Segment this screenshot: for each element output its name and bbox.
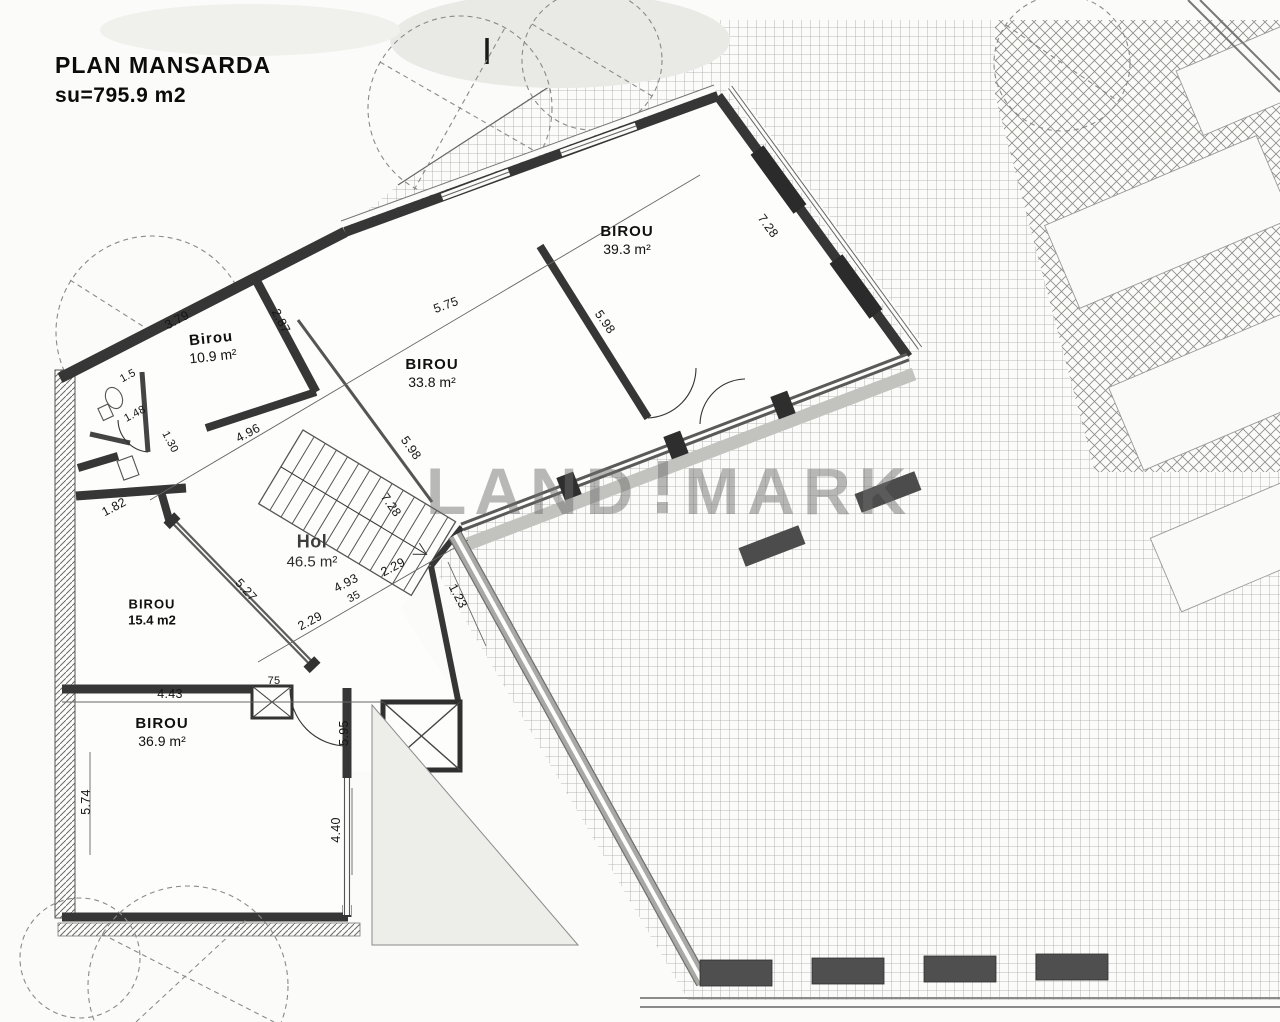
room-area: 33.8 m²: [405, 374, 458, 390]
room-label-hol: Hol 46.5 m²: [287, 532, 338, 571]
dimension-label: 4.43: [157, 687, 183, 701]
room-label-birou-10: Birou 10.9 m²: [187, 328, 238, 367]
room-label-birou-36: BIROU 36.9 m²: [135, 715, 188, 749]
bench: [1036, 954, 1108, 980]
bench: [700, 960, 772, 986]
plan-title-line2: su=795.9 m2: [55, 84, 271, 108]
room-name: Hol: [287, 532, 338, 553]
dimension-label: 5.95: [337, 720, 351, 746]
room-name: BIROU: [600, 223, 653, 240]
room-label-birou-33: BIROU 33.8 m²: [405, 356, 458, 390]
bench: [924, 956, 996, 982]
room-name: BIROU: [128, 597, 176, 612]
room-area: 36.9 m²: [135, 733, 188, 749]
dimension-label: 75: [268, 675, 281, 687]
room-name: BIROU: [405, 356, 458, 373]
dimension-label: 4.40: [329, 817, 343, 843]
scan-smudge: [100, 4, 400, 56]
room-area: 15.4 m2: [128, 613, 176, 628]
floorplan-scan: PLAN MANSARDA su=795.9 m2 BIROU 39.3 m² …: [0, 0, 1280, 1022]
left-wall-band: [55, 370, 75, 918]
room-label-birou-15: BIROU 15.4 m2: [128, 597, 176, 628]
room-name: BIROU: [135, 715, 188, 732]
room-label-birou-39: BIROU 39.3 m²: [600, 223, 653, 257]
room-area: 39.3 m²: [600, 241, 653, 257]
plan-title-line1: PLAN MANSARDA: [55, 52, 271, 79]
bench: [812, 958, 884, 984]
plan-title: PLAN MANSARDA su=795.9 m2: [55, 52, 271, 108]
floor-plan-drawing: [0, 0, 1280, 1022]
dimension-label: 5.74: [79, 789, 93, 815]
glass-wall-east: [345, 778, 350, 915]
room-area: 46.5 m²: [287, 554, 338, 571]
